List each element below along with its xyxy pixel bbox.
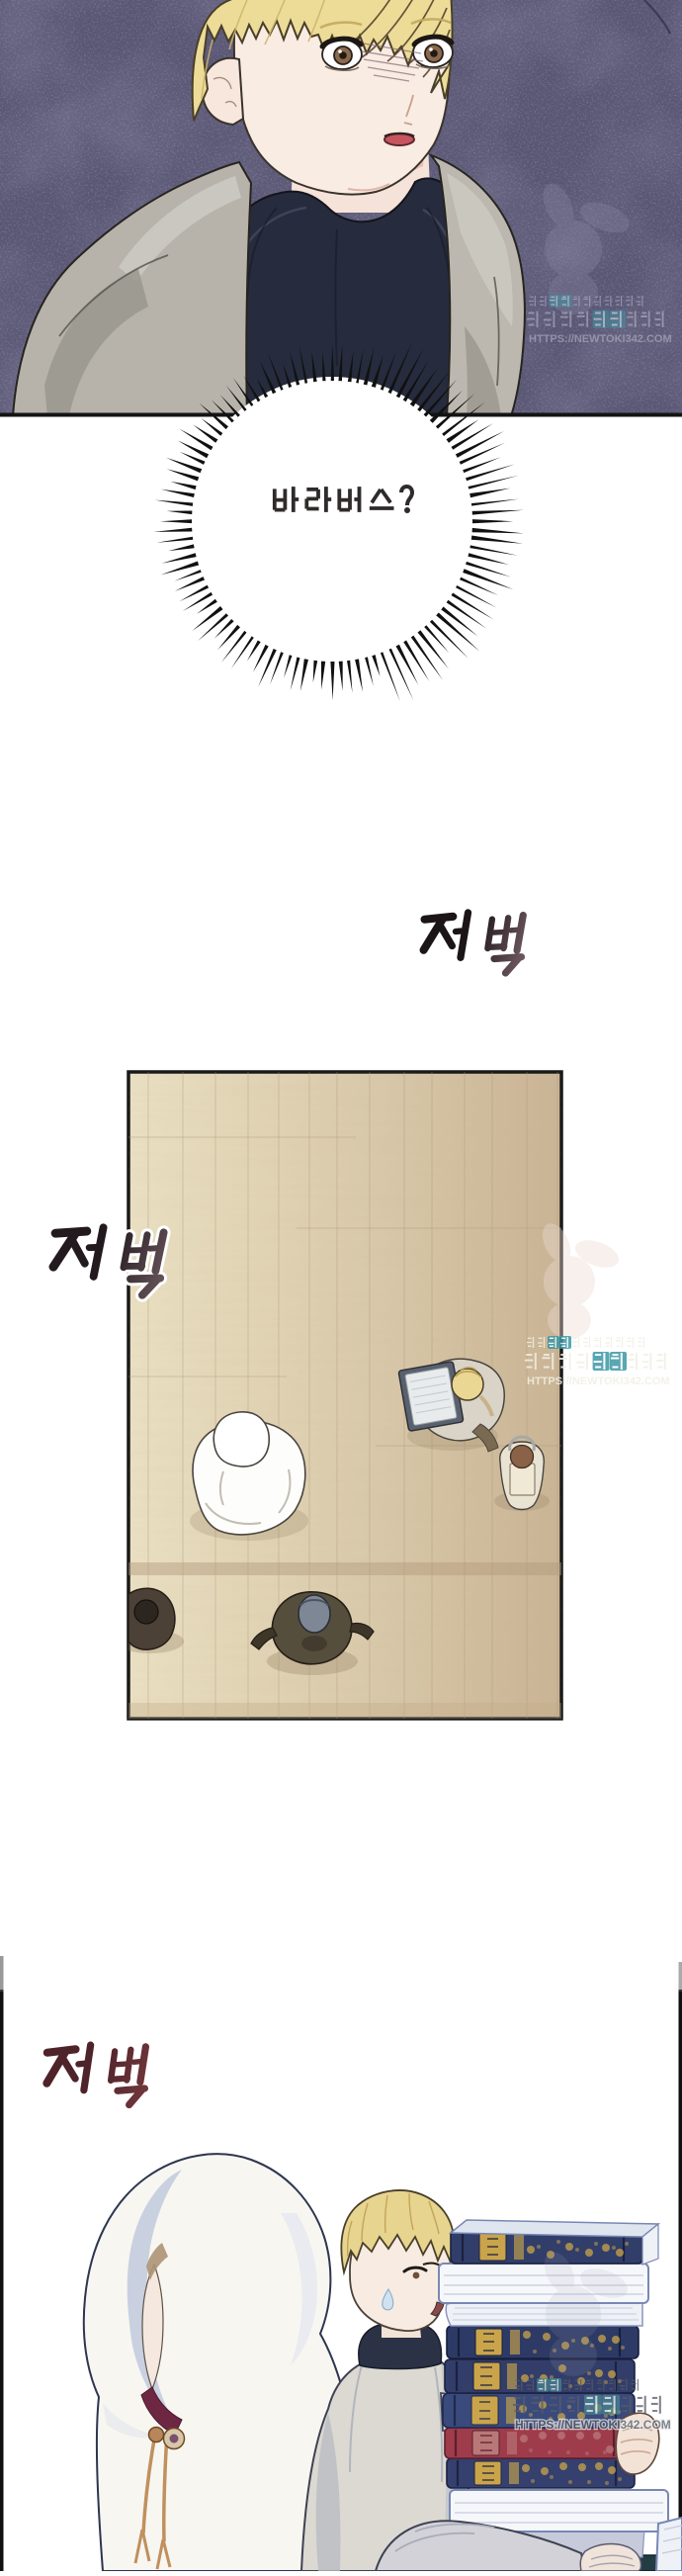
svg-text:HTTPS://NEWTOKI342.COM: HTTPS://NEWTOKI342.COM	[515, 2418, 671, 2432]
svg-text:HTTPS://NEWTOKI342.COM: HTTPS://NEWTOKI342.COM	[527, 1376, 670, 1387]
svg-text:HTTPS://NEWTOKI342.COM: HTTPS://NEWTOKI342.COM	[529, 333, 672, 345]
